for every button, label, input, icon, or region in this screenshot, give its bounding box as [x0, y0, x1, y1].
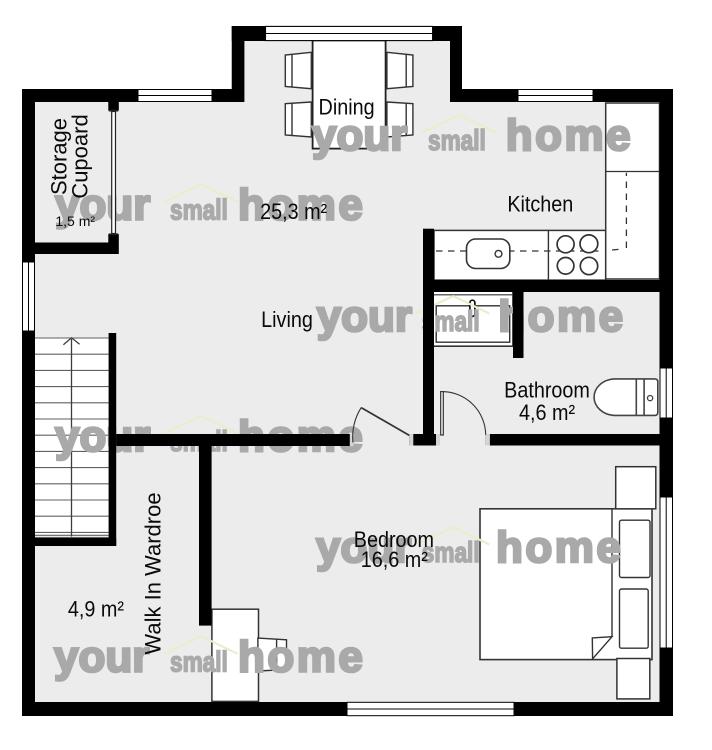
- svg-text:home: home: [496, 523, 623, 572]
- svg-text:StorageCupoard: StorageCupoard: [47, 114, 93, 198]
- svg-text:Kitchen: Kitchen: [507, 192, 573, 216]
- svg-text:small: small: [428, 123, 486, 156]
- svg-text:home: home: [238, 632, 365, 681]
- svg-text:25,3 m²: 25,3 m²: [260, 200, 327, 224]
- svg-text:4,6 m²: 4,6 m²: [519, 401, 575, 425]
- svg-text:4,9 m²: 4,9 m²: [68, 597, 124, 621]
- svg-text:Bathroom: Bathroom: [504, 378, 590, 402]
- svg-text:home: home: [506, 111, 633, 160]
- svg-text:Dining: Dining: [319, 96, 375, 120]
- svg-text:16,6 m²: 16,6 m²: [361, 548, 428, 572]
- svg-text:Living: Living: [261, 308, 313, 332]
- svg-text:your: your: [54, 632, 149, 681]
- svg-text:small: small: [170, 193, 228, 226]
- svg-text:small: small: [170, 645, 228, 678]
- svg-text:1,5 m²: 1,5 m²: [55, 213, 95, 229]
- svg-text:Walk In Wardroe: Walk In Wardroe: [141, 492, 166, 654]
- svg-text:your: your: [317, 292, 412, 341]
